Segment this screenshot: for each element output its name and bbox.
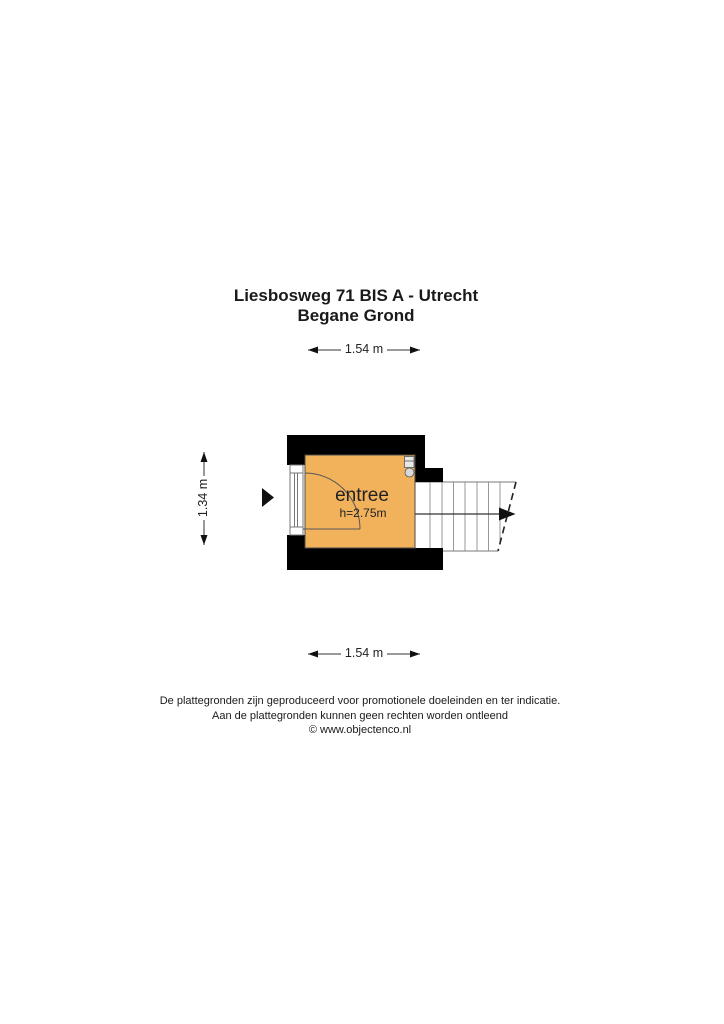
dim-arrow-left-icon bbox=[308, 651, 318, 658]
floorplan-page: { "header": { "title_line1": "Liesbosweg… bbox=[0, 0, 724, 1024]
dim-arrow-up-icon bbox=[201, 452, 208, 462]
wall-right bbox=[415, 435, 425, 473]
dim-arrow-left-icon bbox=[308, 347, 318, 354]
dimension-label-bottom: 1.54 m bbox=[345, 646, 383, 660]
wall-right-foot bbox=[415, 468, 443, 482]
copyright-line: © www.objectenco.nl bbox=[0, 723, 720, 738]
wall-top bbox=[287, 435, 425, 455]
door-hinge-top bbox=[290, 465, 303, 473]
dim-arrow-down-icon bbox=[201, 535, 208, 545]
entrance-arrow-icon bbox=[262, 488, 274, 507]
room-name-label: entree bbox=[335, 485, 389, 507]
room-ceiling-height-label: h=2.75m bbox=[339, 506, 386, 520]
door-frame bbox=[290, 465, 303, 535]
dimension-label-left: 1.34 m bbox=[196, 479, 210, 517]
dim-arrow-right-icon bbox=[410, 651, 420, 658]
disclaimer-line-1: De plattegronden zijn geproduceerd voor … bbox=[0, 694, 720, 709]
staircase bbox=[415, 482, 516, 551]
wall-left-upper bbox=[287, 435, 305, 465]
disclaimer: De plattegronden zijn geproduceerd voor … bbox=[0, 694, 720, 738]
wall-bottom bbox=[287, 548, 443, 570]
disclaimer-line-2: Aan de plattegronden kunnen geen rechten… bbox=[0, 709, 720, 724]
dimension-label-top: 1.54 m bbox=[345, 342, 383, 356]
dim-arrow-right-icon bbox=[410, 347, 420, 354]
meter-box-icon bbox=[405, 457, 415, 468]
door-hinge-bottom bbox=[290, 527, 303, 535]
wall-fixtures bbox=[405, 457, 415, 478]
meter-dial-icon bbox=[405, 468, 414, 477]
